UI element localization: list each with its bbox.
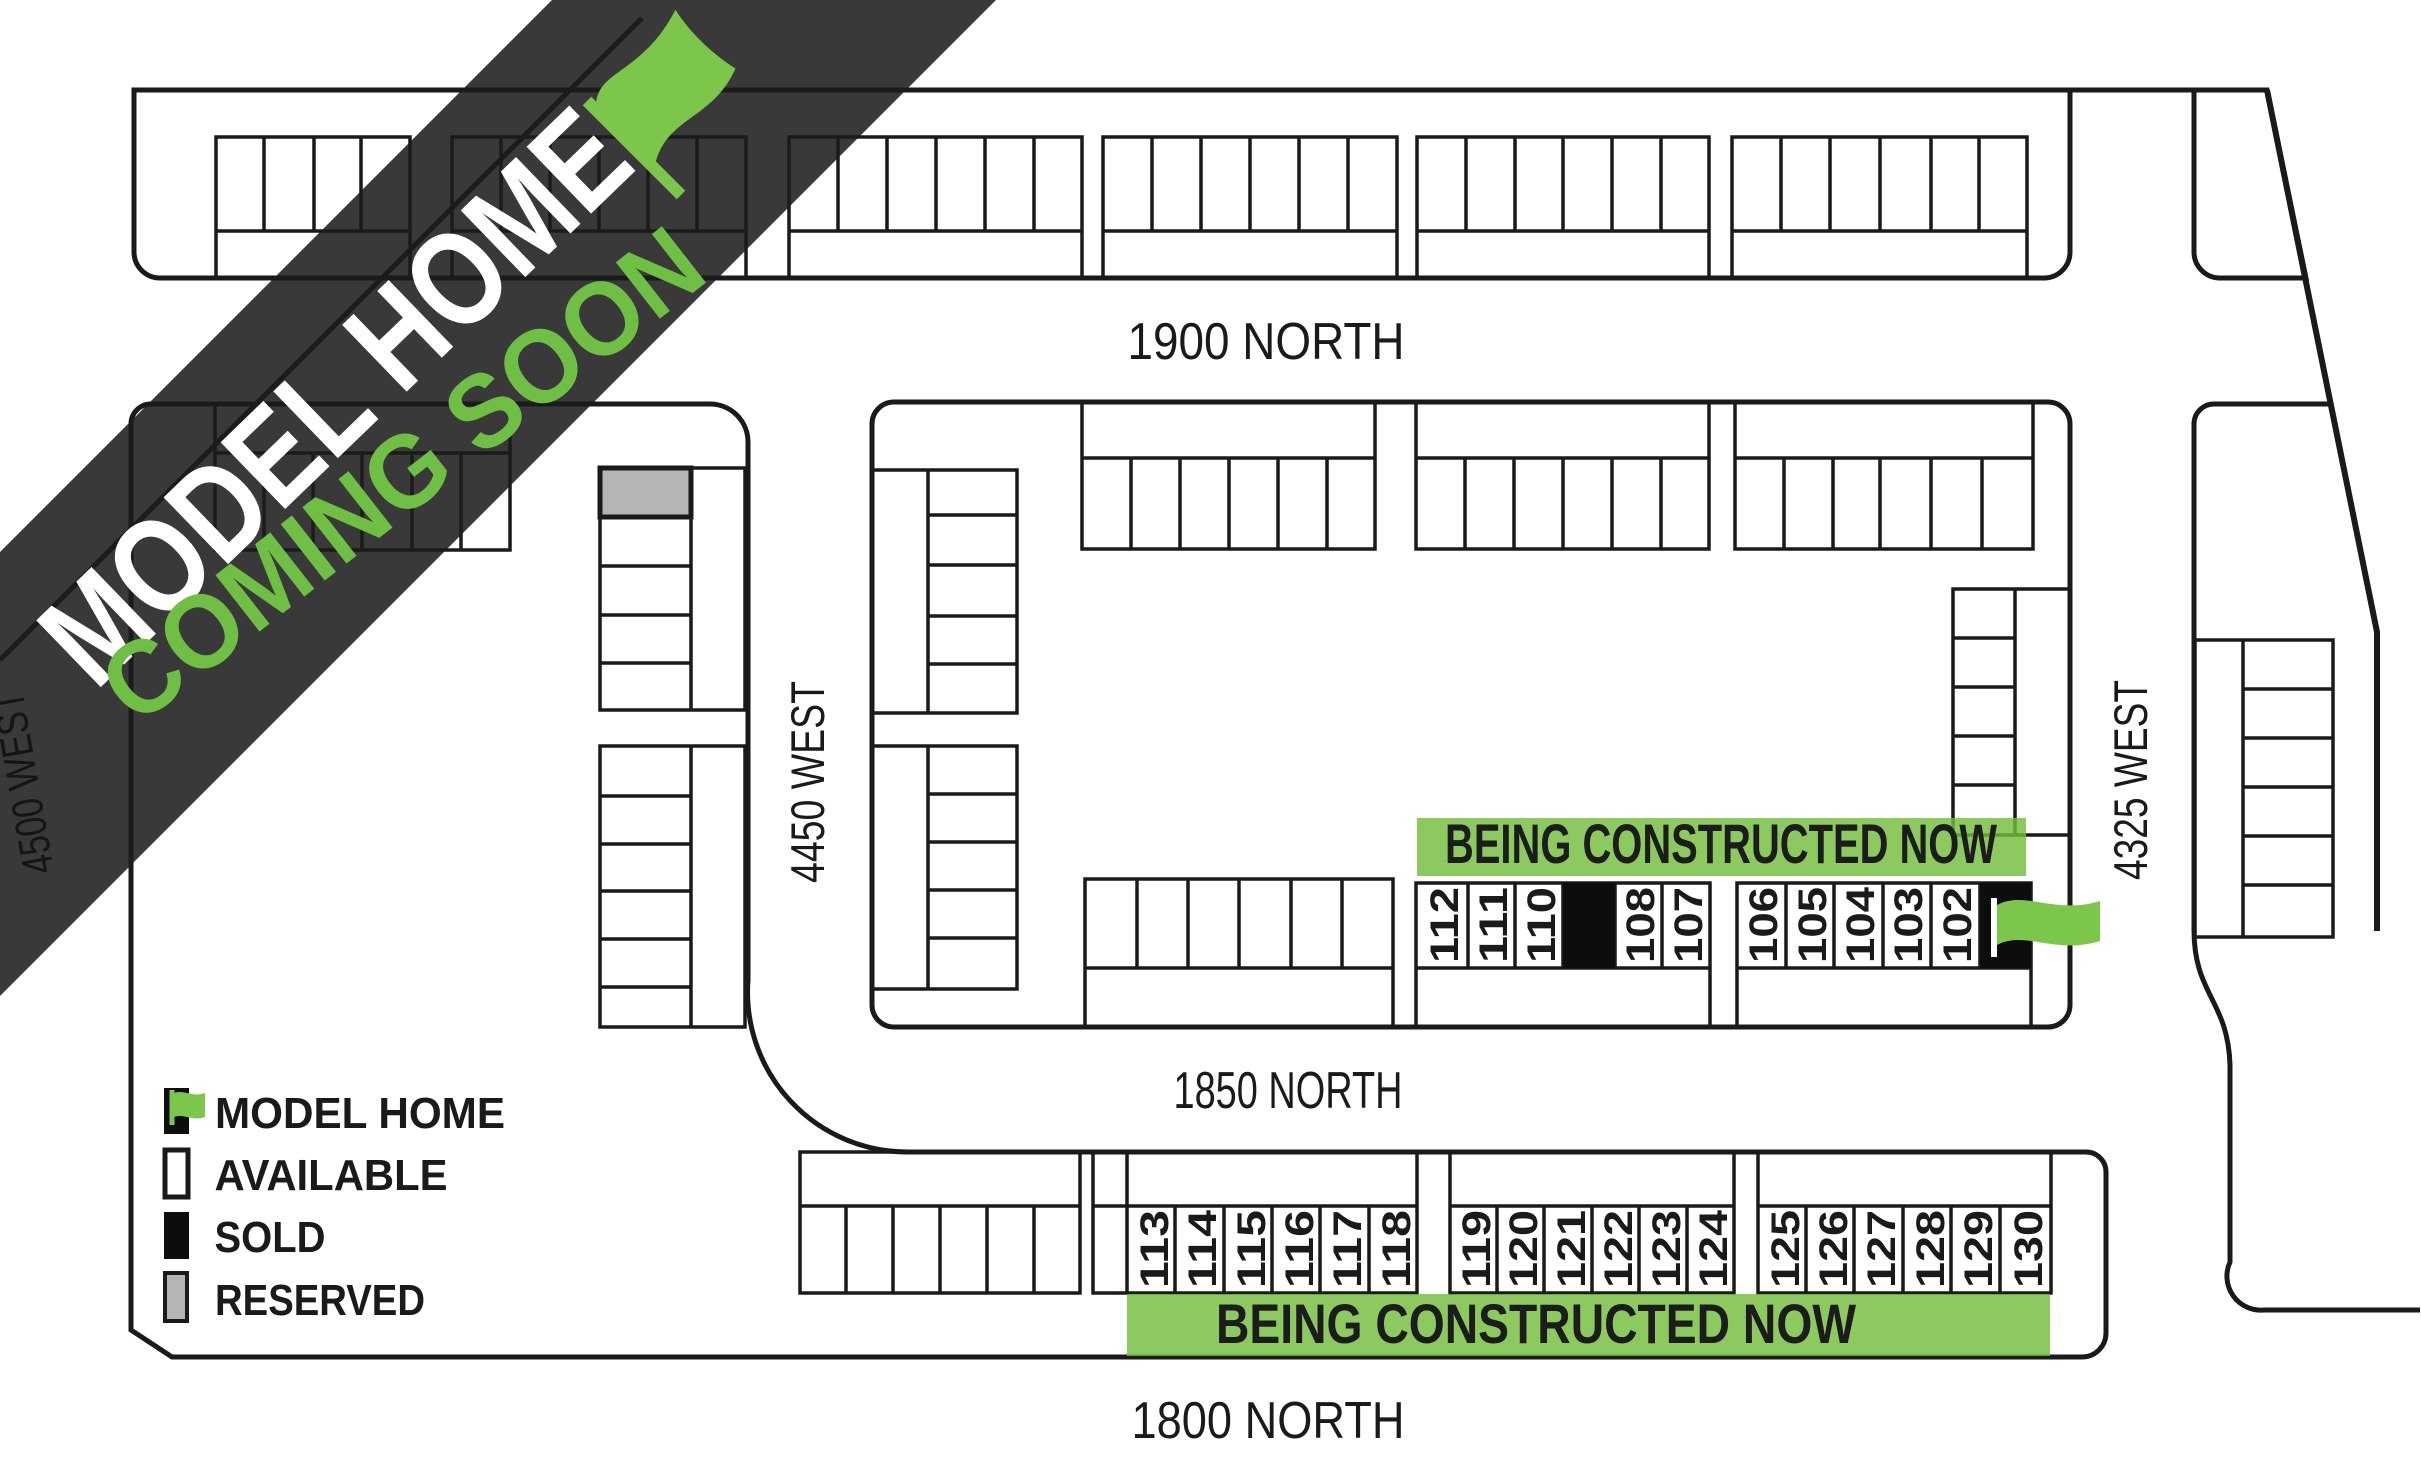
svg-text:130: 130 bbox=[2007, 1210, 2051, 1288]
svg-text:121: 121 bbox=[1550, 1210, 1594, 1288]
svg-text:103: 103 bbox=[1887, 887, 1931, 963]
svg-text:1900 NORTH: 1900 NORTH bbox=[1128, 313, 1405, 371]
svg-text:4325 WEST: 4325 WEST bbox=[2104, 680, 2157, 880]
svg-text:AVAILABLE: AVAILABLE bbox=[215, 1151, 448, 1200]
svg-text:118: 118 bbox=[1375, 1210, 1419, 1288]
svg-text:111: 111 bbox=[1472, 887, 1516, 963]
svg-text:124: 124 bbox=[1692, 1209, 1736, 1288]
svg-text:BEING CONSTRUCTED NOW: BEING CONSTRUCTED NOW bbox=[1216, 1292, 1856, 1355]
svg-text:BEING CONSTRUCTED NOW: BEING CONSTRUCTED NOW bbox=[1445, 812, 1997, 875]
svg-text:126: 126 bbox=[1812, 1210, 1856, 1288]
svg-text:4450 WEST: 4450 WEST bbox=[781, 681, 834, 883]
svg-text:1800 NORTH: 1800 NORTH bbox=[1132, 1392, 1405, 1450]
svg-text:RESERVED: RESERVED bbox=[215, 1276, 425, 1325]
svg-text:125: 125 bbox=[1764, 1210, 1808, 1288]
svg-text:114: 114 bbox=[1181, 1209, 1225, 1288]
svg-text:112: 112 bbox=[1423, 887, 1467, 963]
svg-text:116: 116 bbox=[1278, 1210, 1322, 1288]
svg-text:110: 110 bbox=[1520, 887, 1564, 963]
svg-text:1850 NORTH: 1850 NORTH bbox=[1174, 1062, 1403, 1120]
svg-text:102: 102 bbox=[1936, 887, 1980, 963]
svg-text:104: 104 bbox=[1839, 886, 1883, 963]
svg-text:113: 113 bbox=[1133, 1210, 1177, 1288]
svg-text:122: 122 bbox=[1597, 1210, 1641, 1288]
svg-text:108: 108 bbox=[1619, 887, 1663, 963]
svg-text:117: 117 bbox=[1326, 1210, 1370, 1288]
svg-text:105: 105 bbox=[1791, 887, 1835, 963]
svg-text:128: 128 bbox=[1909, 1210, 1953, 1288]
svg-text:120: 120 bbox=[1502, 1210, 1546, 1288]
svg-text:MODEL HOME: MODEL HOME bbox=[215, 1089, 505, 1138]
svg-text:SOLD: SOLD bbox=[215, 1213, 326, 1262]
svg-text:115: 115 bbox=[1230, 1210, 1274, 1288]
svg-text:123: 123 bbox=[1645, 1210, 1689, 1288]
svg-text:127: 127 bbox=[1860, 1210, 1904, 1288]
svg-text:119: 119 bbox=[1455, 1210, 1499, 1288]
svg-text:129: 129 bbox=[1957, 1210, 2001, 1288]
svg-text:107: 107 bbox=[1667, 887, 1711, 963]
svg-text:106: 106 bbox=[1742, 887, 1786, 963]
